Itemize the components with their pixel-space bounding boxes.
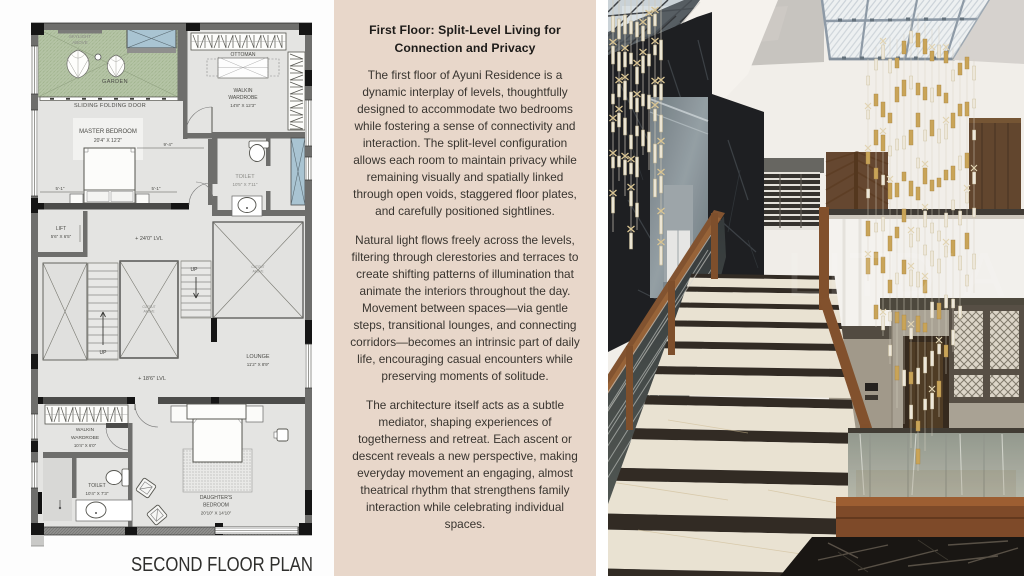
svg-text:MASTER BEDROOM: MASTER BEDROOM [79, 129, 137, 135]
svg-text:ABOVE: ABOVE [144, 310, 155, 314]
svg-text:+ 18'6" LVL: + 18'6" LVL [138, 376, 166, 382]
svg-text:20'10" X 14'10": 20'10" X 14'10" [201, 511, 232, 516]
svg-text:WALKIN: WALKIN [234, 88, 253, 94]
svg-text:TOILET: TOILET [88, 483, 105, 489]
svg-text:20'4" X 12'2": 20'4" X 12'2" [94, 138, 122, 144]
svg-text:CUTOUT: CUTOUT [251, 265, 264, 269]
svg-text:TOILET: TOILET [235, 174, 255, 180]
svg-text:10'4" X 6'0": 10'4" X 6'0" [74, 443, 97, 448]
svg-text:UP: UP [100, 350, 108, 356]
svg-text:SKYLIGHT: SKYLIGHT [69, 34, 92, 39]
svg-text:10'4" X 7'3": 10'4" X 7'3" [86, 491, 109, 496]
svg-text:LITDIA: LITDIA [787, 241, 1010, 310]
svg-text:WARDROBE: WARDROBE [71, 435, 99, 441]
svg-text:WARDROBE: WARDROBE [228, 95, 258, 101]
svg-text:SECOND FLOOR PLAN: SECOND FLOOR PLAN [131, 554, 313, 576]
svg-text:CUTOUT: CUTOUT [142, 305, 155, 309]
svg-text:SLIDING FOLDING DOOR: SLIDING FOLDING DOOR [74, 103, 146, 109]
svg-text:5'6" X 6'5": 5'6" X 6'5" [51, 234, 72, 239]
svg-text:5'-1": 5'-1" [56, 186, 65, 191]
svg-text:9'-4": 9'-4" [164, 142, 173, 147]
svg-text:ABOVE: ABOVE [72, 40, 88, 45]
svg-text:ABOVE: ABOVE [253, 270, 264, 274]
svg-text:DAUGHTER'S: DAUGHTER'S [200, 495, 233, 501]
svg-text:5'-1": 5'-1" [152, 186, 161, 191]
svg-text:LOUNGE: LOUNGE [246, 354, 270, 360]
svg-text:10'5" X 7'11": 10'5" X 7'11" [232, 182, 257, 187]
svg-text:14'8" X 12'3": 14'8" X 12'3" [230, 103, 256, 108]
svg-text:OTTOMAN: OTTOMAN [231, 52, 256, 58]
svg-text:GARDEN: GARDEN [102, 79, 128, 85]
svg-text:WALKIN: WALKIN [76, 427, 95, 433]
svg-text:11'2" X 8'9": 11'2" X 8'9" [247, 362, 270, 367]
svg-text:+ 24'0" LVL: + 24'0" LVL [135, 236, 163, 242]
svg-text:UP: UP [191, 267, 199, 273]
svg-text:BEDROOM: BEDROOM [203, 503, 229, 509]
svg-text:LIFT: LIFT [56, 226, 66, 232]
